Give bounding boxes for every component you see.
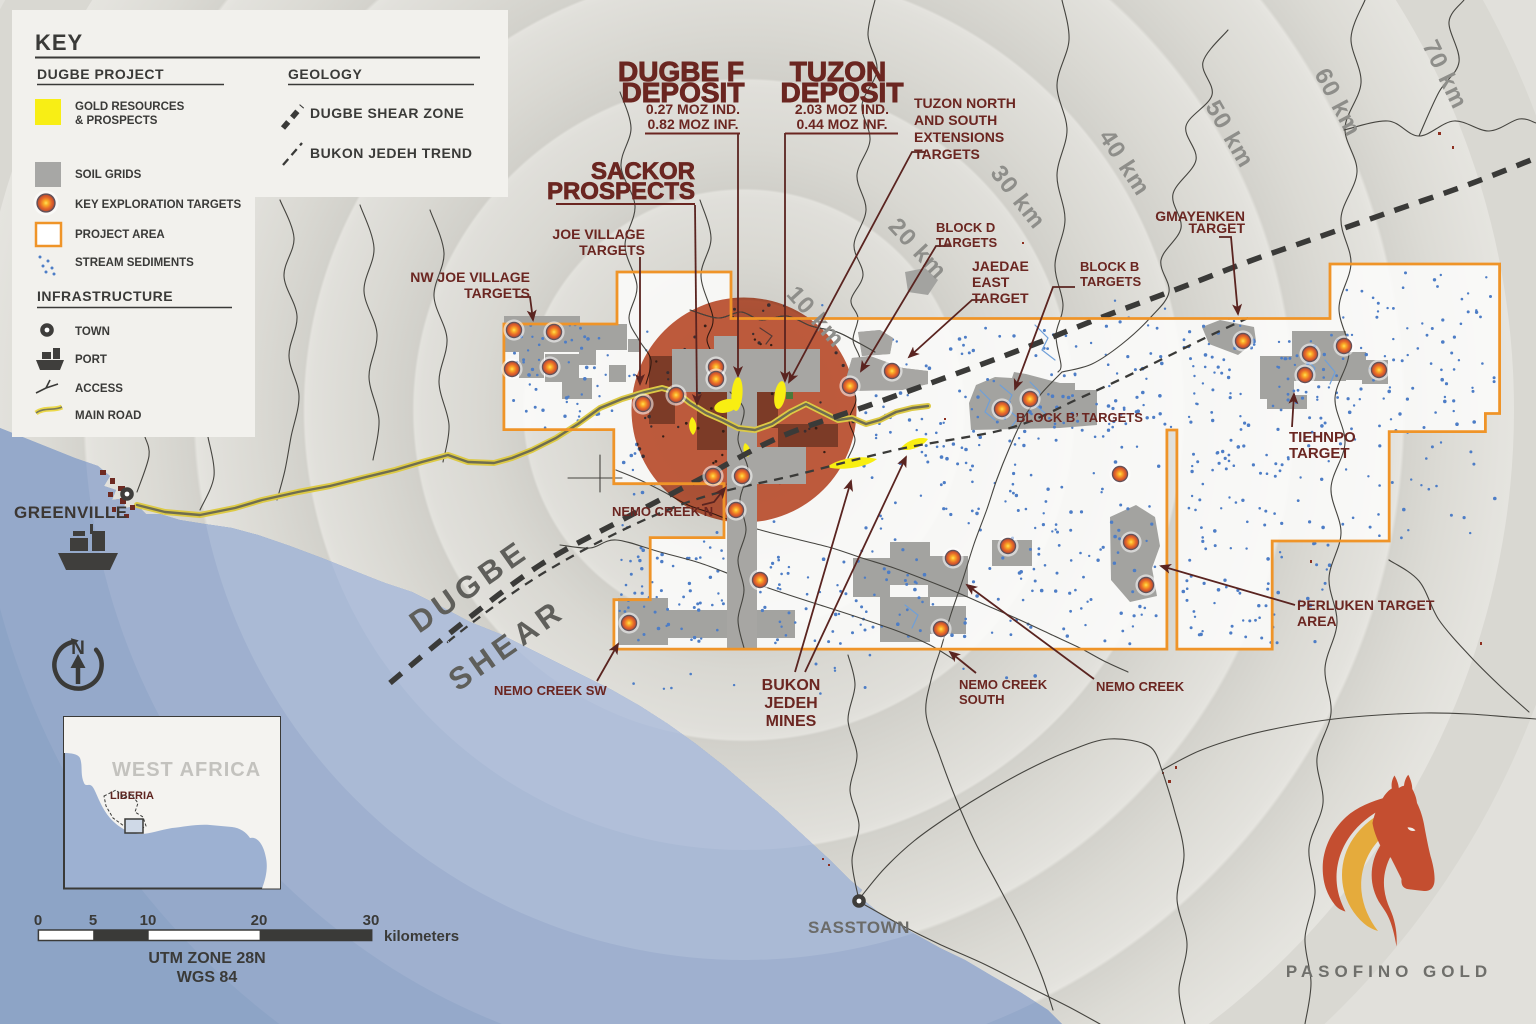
svg-text:WEST AFRICA: WEST AFRICA <box>112 759 261 781</box>
svg-text:TARGET: TARGET <box>972 290 1029 306</box>
svg-text:0.27 MOZ IND.: 0.27 MOZ IND. <box>646 101 740 117</box>
svg-text:SOUTH: SOUTH <box>959 692 1005 707</box>
svg-text:TIEHNPO: TIEHNPO <box>1289 429 1356 446</box>
svg-text:ACCESS: ACCESS <box>75 383 123 395</box>
svg-text:KEY EXPLORATION TARGETS: KEY EXPLORATION TARGETS <box>75 199 241 211</box>
svg-text:NEMO CREEK SW: NEMO CREEK SW <box>494 683 607 698</box>
svg-text:0.82 MOZ INF.: 0.82 MOZ INF. <box>647 116 738 132</box>
svg-text:BLOCK B’ TARGETS: BLOCK B’ TARGETS <box>1016 410 1143 425</box>
svg-text:MINES: MINES <box>766 713 817 730</box>
svg-text:STREAM SEDIMENTS: STREAM SEDIMENTS <box>75 257 194 269</box>
svg-text:TARGETS: TARGETS <box>914 146 980 162</box>
svg-text:GREENVILLE: GREENVILLE <box>14 503 128 522</box>
svg-text:30: 30 <box>363 912 380 929</box>
svg-text:MAIN ROAD: MAIN ROAD <box>75 410 141 422</box>
svg-text:JOE VILLAGE: JOE VILLAGE <box>552 226 645 242</box>
svg-text:NEMO CREEK: NEMO CREEK <box>1096 679 1185 694</box>
svg-text:NEMO CREEK: NEMO CREEK <box>959 677 1048 692</box>
svg-text:BUKON JEDEH TREND: BUKON JEDEH TREND <box>310 145 473 161</box>
svg-text:TARGETS: TARGETS <box>579 242 645 258</box>
svg-text:5: 5 <box>89 912 97 929</box>
svg-text:GOLD RESOURCES: GOLD RESOURCES <box>75 101 185 113</box>
svg-text:kilometers: kilometers <box>384 928 459 945</box>
svg-text:WGS 84: WGS 84 <box>177 969 238 986</box>
svg-text:JAEDAE: JAEDAE <box>972 258 1029 274</box>
svg-text:10: 10 <box>140 912 157 929</box>
svg-text:BLOCK B: BLOCK B <box>1080 259 1139 274</box>
svg-text:TARGETS: TARGETS <box>464 285 530 301</box>
svg-text:TOWN: TOWN <box>75 326 110 338</box>
svg-text:DUGBE SHEAR ZONE: DUGBE SHEAR ZONE <box>310 105 464 121</box>
svg-text:BLOCK D: BLOCK D <box>936 220 995 235</box>
svg-text:AREA: AREA <box>1297 613 1337 629</box>
svg-text:EXTENSIONS: EXTENSIONS <box>914 129 1004 145</box>
svg-text:DUGBE PROJECT: DUGBE PROJECT <box>37 66 164 82</box>
svg-text:0: 0 <box>34 912 42 929</box>
svg-text:EAST: EAST <box>972 274 1010 290</box>
svg-text:INFRASTRUCTURE: INFRASTRUCTURE <box>37 288 173 304</box>
svg-text:SOIL GRIDS: SOIL GRIDS <box>75 169 142 181</box>
svg-text:TARGET: TARGET <box>1188 220 1245 236</box>
svg-text:0.44 MOZ INF.: 0.44 MOZ INF. <box>796 116 887 132</box>
svg-text:NEMO CREEK N: NEMO CREEK N <box>612 504 713 519</box>
svg-text:NW JOE VILLAGE: NW JOE VILLAGE <box>410 269 530 285</box>
svg-text:SASSTOWN: SASSTOWN <box>808 918 910 937</box>
svg-text:JEDEH: JEDEH <box>764 695 817 712</box>
svg-text:PROSPECTS: PROSPECTS <box>547 178 695 205</box>
svg-text:2.03 MOZ IND.: 2.03 MOZ IND. <box>795 101 889 117</box>
svg-text:PASOFINO GOLD: PASOFINO GOLD <box>1286 962 1492 981</box>
svg-text:BUKON: BUKON <box>762 677 821 694</box>
svg-text:TARGETS: TARGETS <box>1080 274 1141 289</box>
svg-text:UTM ZONE 28N: UTM ZONE 28N <box>148 950 265 967</box>
svg-text:TUZON NORTH: TUZON NORTH <box>914 95 1016 111</box>
svg-text:KEY: KEY <box>35 30 83 55</box>
svg-text:PROJECT AREA: PROJECT AREA <box>75 229 165 241</box>
svg-text:& PROSPECTS: & PROSPECTS <box>75 115 158 127</box>
svg-text:PERLUKEN TARGET: PERLUKEN TARGET <box>1297 597 1435 613</box>
svg-text:TARGET: TARGET <box>1289 445 1350 462</box>
svg-text:GEOLOGY: GEOLOGY <box>288 66 362 82</box>
svg-text:AND SOUTH: AND SOUTH <box>914 112 997 128</box>
svg-text:20: 20 <box>251 912 268 929</box>
svg-text:TARGETS: TARGETS <box>936 235 997 250</box>
svg-text:PORT: PORT <box>75 354 107 366</box>
